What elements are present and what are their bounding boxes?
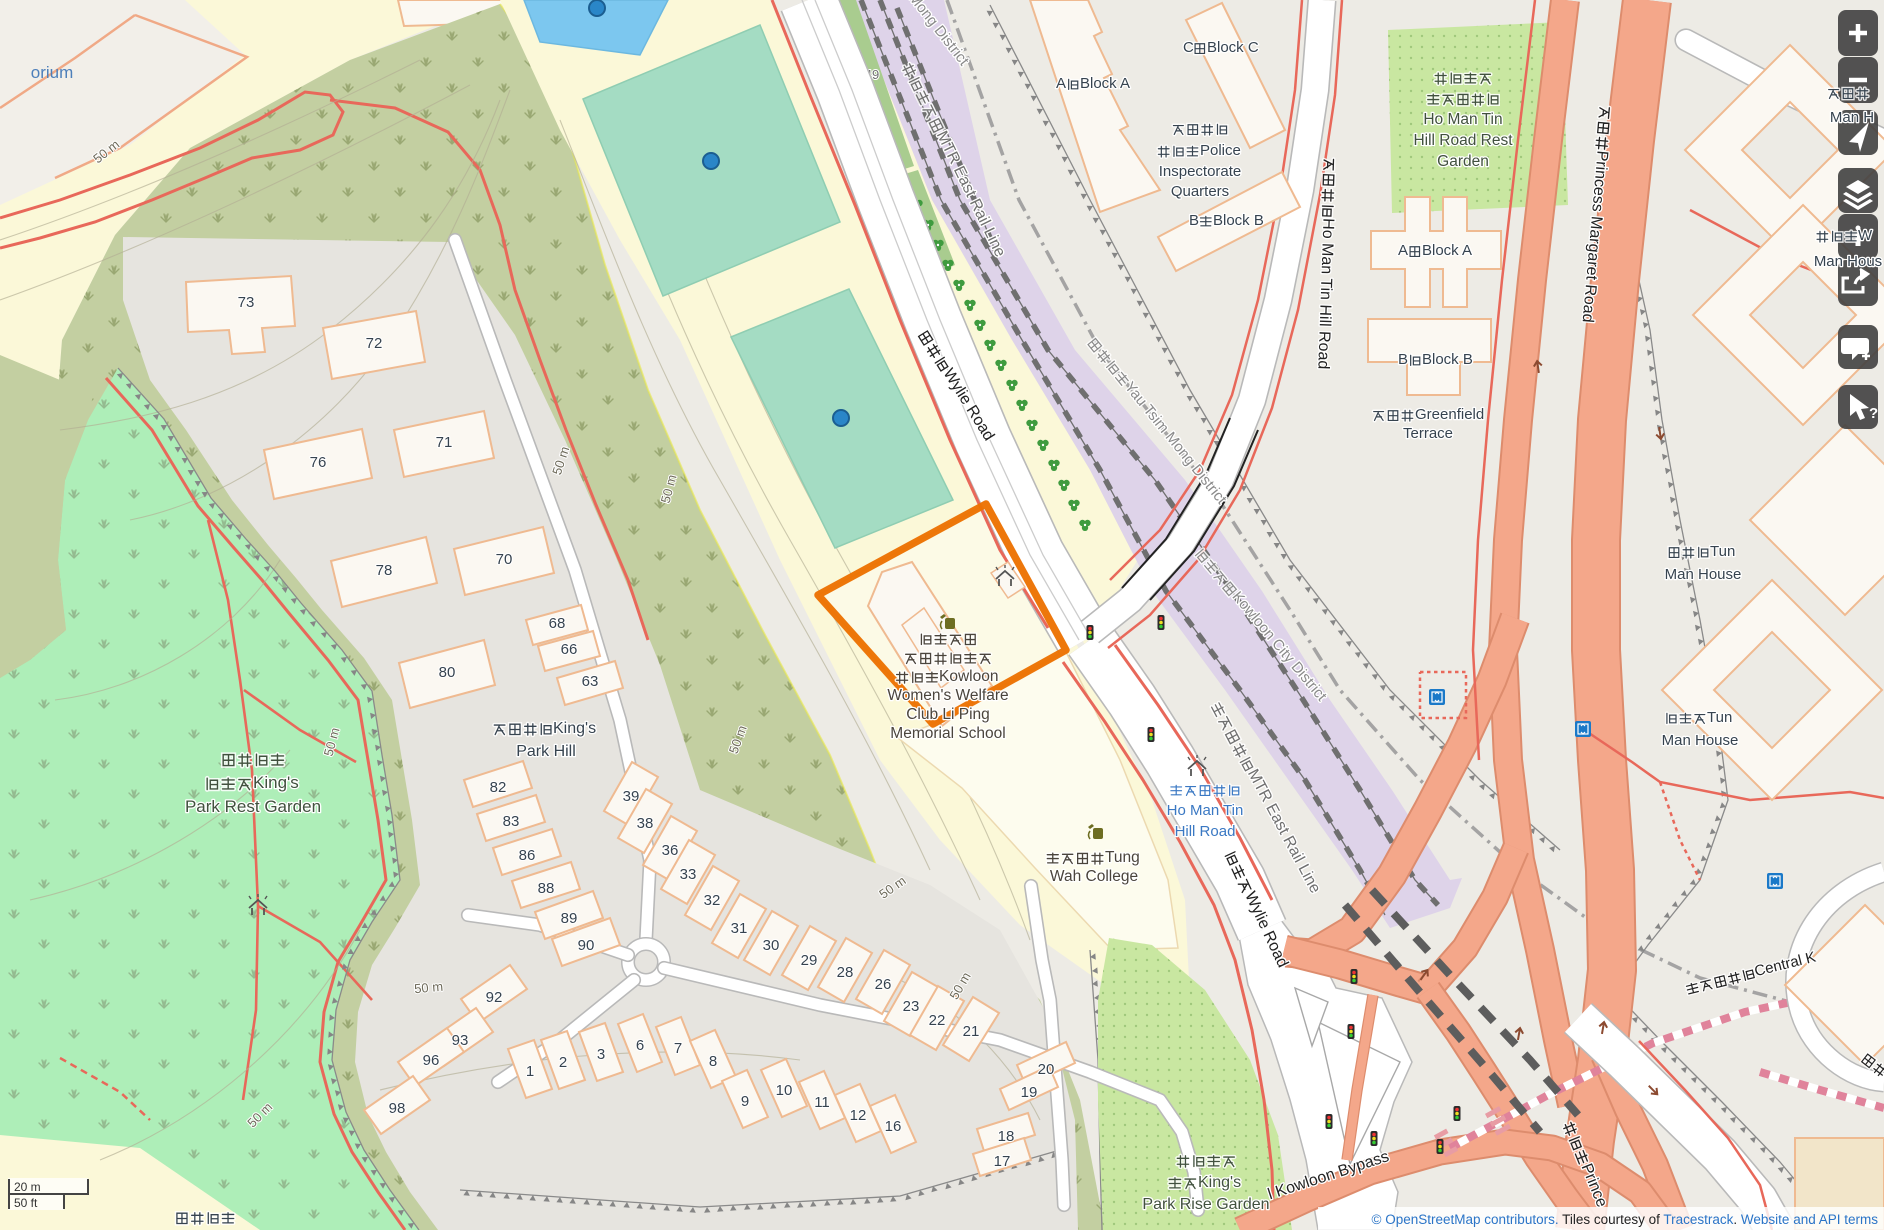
svg-text:20: 20 [1038,1061,1055,1078]
svg-text:W: W [1858,227,1873,244]
svg-text:Block A: Block A [1422,242,1472,259]
svg-text:Ho Man Tin: Ho Man Tin [1167,802,1244,819]
svg-text:A: A [1398,242,1408,259]
svg-text:Block A: Block A [1080,75,1130,92]
svg-text:33: 33 [680,866,697,883]
svg-text:Wah College: Wah College [1050,868,1138,885]
svg-text:76: 76 [310,454,327,471]
svg-text:King's: King's [253,773,299,792]
svg-text:3: 3 [597,1046,605,1063]
svg-text:Hill Road: Hill Road [1175,823,1236,840]
svg-text:Memorial School: Memorial School [890,725,1005,742]
svg-text:63: 63 [582,673,599,690]
svg-text:Terrace: Terrace [1403,425,1453,442]
svg-text:96: 96 [423,1052,440,1069]
svg-text:King's: King's [1198,1174,1241,1191]
svg-text:Inspectorate: Inspectorate [1159,163,1242,180]
svg-text:Hill Road Rest: Hill Road Rest [1413,132,1513,149]
svg-text:?: ? [1869,405,1878,422]
svg-text:Man House: Man House [1665,566,1742,583]
svg-text:Tung: Tung [1105,849,1140,866]
svg-text:Women's Welfare: Women's Welfare [887,687,1008,704]
svg-text:Quarters: Quarters [1171,183,1229,200]
svg-text:King's: King's [553,720,596,737]
svg-text:Block C: Block C [1207,39,1259,56]
svg-text:7: 7 [674,1040,682,1057]
svg-text:86: 86 [519,847,536,864]
svg-text:Tun: Tun [1707,709,1732,726]
svg-text:29: 29 [801,952,818,969]
svg-text:Man H: Man H [1830,109,1874,126]
svg-text:B: B [1189,212,1199,229]
svg-text:22: 22 [929,1012,946,1029]
svg-text:Man Hous: Man Hous [1814,253,1882,270]
svg-text:38: 38 [637,815,654,832]
svg-text:Block B: Block B [1422,351,1473,368]
svg-text:18: 18 [998,1128,1015,1145]
svg-text:88: 88 [538,880,555,897]
svg-text:72: 72 [366,335,383,352]
svg-text:Park Rise Garden: Park Rise Garden [1142,1196,1269,1213]
svg-text:B: B [1398,351,1408,368]
svg-text:93: 93 [452,1032,469,1049]
svg-text:17: 17 [994,1153,1011,1170]
svg-text:70: 70 [496,551,513,568]
svg-text:12: 12 [850,1107,867,1124]
svg-text:9: 9 [741,1093,749,1110]
svg-text:C: C [1183,39,1194,56]
svg-text:31: 31 [731,920,748,937]
svg-text:16: 16 [885,1118,902,1135]
svg-text:82: 82 [490,779,507,796]
svg-text:50 ft: 50 ft [14,1196,38,1210]
svg-text:orium: orium [31,63,74,82]
svg-text:2: 2 [559,1054,567,1071]
svg-text:8: 8 [709,1053,717,1070]
svg-text:83: 83 [503,813,520,830]
svg-text:36: 36 [662,842,679,859]
svg-text:30: 30 [763,937,780,954]
svg-text:89: 89 [561,910,578,927]
svg-text:50 m: 50 m [414,979,444,996]
svg-text:11: 11 [814,1094,830,1111]
svg-text:Park Hill: Park Hill [516,743,576,760]
svg-text:23: 23 [903,998,920,1015]
svg-text:Man House: Man House [1662,732,1739,749]
svg-text:80: 80 [439,664,456,681]
svg-text:68: 68 [549,615,566,632]
svg-text:21: 21 [963,1023,980,1040]
svg-text:6: 6 [636,1037,644,1054]
svg-text:71: 71 [436,434,453,451]
svg-text:90: 90 [578,937,595,954]
svg-text:98: 98 [389,1100,406,1117]
svg-text:Tun: Tun [1710,543,1735,560]
svg-text:1: 1 [526,1063,534,1080]
svg-text:20 m: 20 m [14,1180,41,1194]
svg-text:92: 92 [486,989,503,1006]
svg-text:28: 28 [837,964,854,981]
svg-text:Block B: Block B [1213,212,1264,229]
svg-text:10: 10 [776,1082,793,1099]
svg-text:A: A [1056,75,1066,92]
svg-text:Park Rest Garden: Park Rest Garden [185,797,321,816]
svg-text:78: 78 [376,562,393,579]
svg-text:Police: Police [1200,142,1241,159]
svg-text:26: 26 [875,976,892,993]
svg-text:Garden: Garden [1437,153,1489,170]
svg-text:66: 66 [561,641,578,658]
svg-text:Club Li Ping: Club Li Ping [906,706,990,723]
svg-text:Ho Man Tin: Ho Man Tin [1423,111,1502,128]
svg-text:Kowloon: Kowloon [939,668,998,685]
svg-text:32: 32 [704,892,721,909]
svg-text:19: 19 [1021,1084,1038,1101]
svg-text:Greenfield: Greenfield [1415,406,1484,423]
svg-text:73: 73 [238,294,255,311]
svg-text:© OpenStreetMap contributors.: © OpenStreetMap contributors. Tiles cour… [1372,1212,1879,1227]
svg-text:39: 39 [623,788,640,805]
